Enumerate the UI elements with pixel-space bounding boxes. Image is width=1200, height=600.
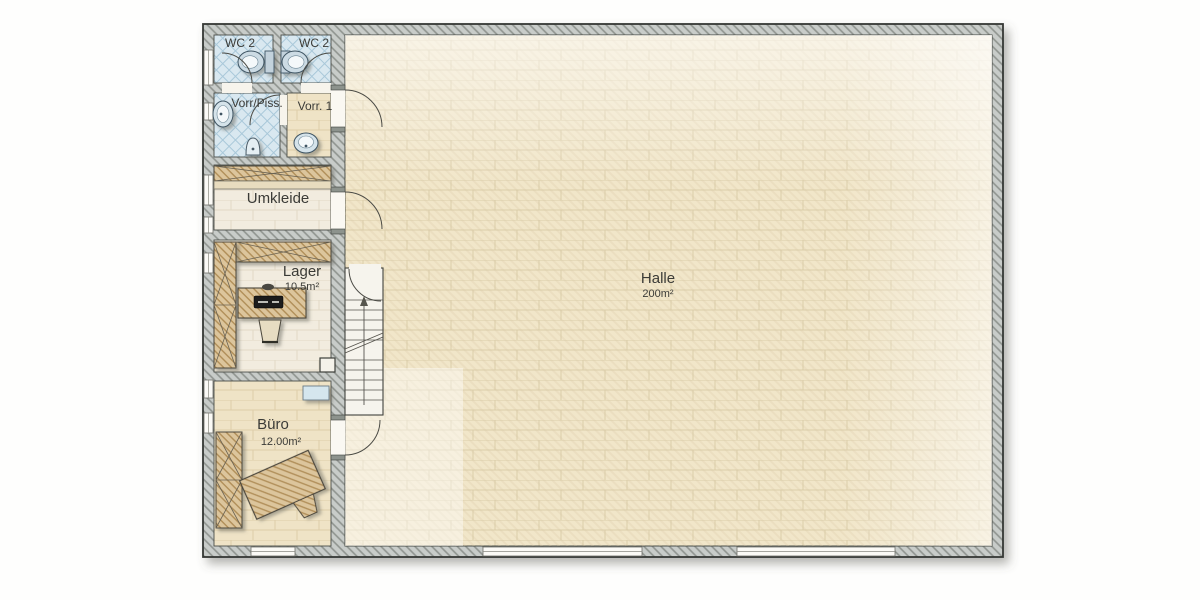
door-gap-wc-left (222, 83, 252, 93)
door-gap-umkleide-halle (331, 192, 345, 229)
room-label-umkleide: Umkleide (247, 190, 310, 207)
room-label-wc-right: WC 2 (299, 36, 329, 50)
stair-door-gap (349, 264, 381, 272)
room-label-vorr-1: Vorr. 1 (298, 99, 333, 113)
shelving-left (214, 242, 236, 368)
sink-unit (303, 386, 329, 400)
shelving-top (236, 242, 331, 262)
urinal (246, 138, 260, 155)
room-label-halle: Halle (641, 270, 675, 287)
room-label-buero: Büro (257, 416, 289, 433)
wardrobe (216, 432, 242, 528)
room-label-vorr-piss: Vorr/Piss. (231, 96, 282, 110)
desk-phone (262, 284, 274, 290)
floorplan-canvas: WC 2 WC 2 Vorr/Piss. Vorr. 1 Umkleide La… (0, 0, 1200, 600)
lager-office-chair (259, 320, 281, 342)
washbasin-vorr-1 (294, 133, 318, 153)
staircase (345, 264, 383, 415)
room-area-lager: 10.5m² (285, 281, 320, 293)
room-label-lager: Lager (283, 263, 321, 280)
floorplan-drawing: WC 2 WC 2 Vorr/Piss. Vorr. 1 Umkleide La… (0, 0, 1200, 600)
door-gap-buero-halle (331, 420, 345, 455)
halle-light-right (842, 35, 992, 546)
door-gap-wc-right (301, 83, 331, 93)
room-area-buero: 12.00m² (261, 436, 302, 448)
washbasin-vorr-piss (213, 101, 233, 127)
door-gap-vorr1-halle (331, 90, 345, 127)
service-box (320, 358, 335, 372)
room-area-halle: 200m² (642, 288, 674, 300)
room-label-wc-left: WC 2 (225, 36, 255, 50)
bench (214, 181, 331, 189)
locker-row (214, 166, 331, 181)
